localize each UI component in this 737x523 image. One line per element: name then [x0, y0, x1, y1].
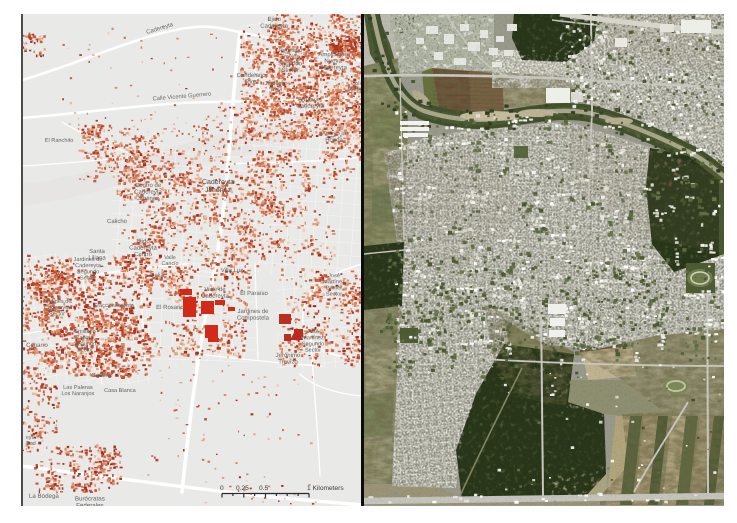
- svg-text:Villa Luz: Villa Luz: [221, 268, 244, 274]
- svg-text:El Paraíso: El Paraíso: [240, 291, 268, 297]
- svg-text:Jardines deCompostela: Jardines deCompostela: [237, 309, 270, 322]
- svg-text:eytaBod: eytaBod: [26, 435, 36, 447]
- svg-text:JerónimoTrevizo: JerónimoTrevizo: [276, 353, 301, 366]
- svg-text:0.25: 0.25: [236, 485, 249, 492]
- svg-text:Casa Blanca: Casa Blanca: [104, 388, 137, 394]
- svg-text:Fraccionamiento: Fraccionamiento: [94, 303, 134, 309]
- svg-text:EmilianoZapataSegundoSector: EmilianoZapataSegundoSector: [74, 329, 96, 354]
- svg-text:Valle deCadereyta: Valle deCadereyta: [201, 287, 229, 300]
- svg-text:BurócratasFederales: BurócratasFederales: [75, 495, 105, 506]
- svg-text:El Ranchito: El Ranchito: [45, 138, 74, 144]
- svg-text:0.5: 0.5: [259, 485, 268, 492]
- svg-text:1 Kilometers: 1 Kilometers: [307, 485, 344, 492]
- svg-text:Cenarro: Cenarro: [26, 343, 48, 349]
- svg-text:0: 0: [220, 485, 224, 492]
- svg-text:La Bodega: La Bodega: [29, 493, 59, 500]
- svg-text:Centro deCadereytaJiménez: Centro deCadereytaJiménez: [134, 183, 162, 202]
- svg-text:CadereytaJiménez: CadereytaJiménez: [202, 179, 234, 194]
- svg-text:Calicho: Calicho: [107, 219, 128, 225]
- svg-text:El Rosario: El Rosario: [156, 305, 184, 311]
- svg-text:Delia: Delia: [150, 273, 164, 279]
- svg-text:Las PalerasLos Naranjos: Las PalerasLos Naranjos: [61, 385, 94, 397]
- svg-text:Caserío: Caserío: [91, 373, 113, 379]
